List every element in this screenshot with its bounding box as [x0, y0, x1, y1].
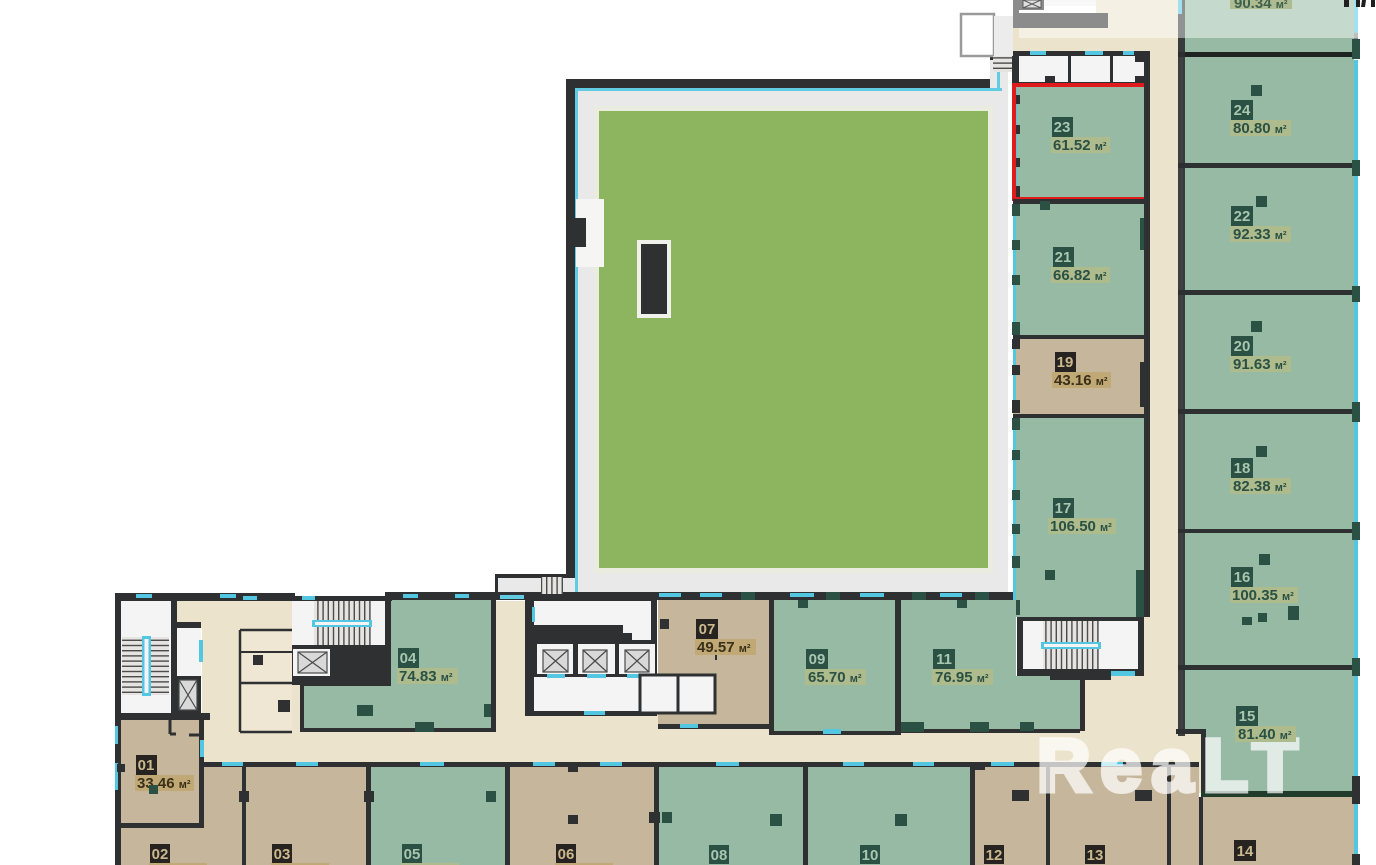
svg-text:10: 10 [862, 847, 879, 864]
svg-text:19: 19 [1057, 354, 1074, 371]
svg-text:12: 12 [986, 847, 1003, 864]
svg-text:13: 13 [1087, 847, 1104, 864]
svg-text:16: 16 [1234, 569, 1251, 586]
svg-text:04: 04 [400, 650, 417, 667]
svg-text:23: 23 [1054, 119, 1071, 136]
svg-text:11: 11 [936, 651, 952, 668]
svg-text:07: 07 [699, 621, 716, 638]
svg-text:90.34 м²: 90.34 м² [1234, 0, 1288, 12]
svg-text:06: 06 [558, 846, 575, 863]
svg-text:01: 01 [138, 757, 155, 774]
svg-text:24: 24 [1234, 102, 1251, 119]
svg-text:20: 20 [1234, 338, 1251, 355]
svg-text:22: 22 [1234, 208, 1251, 225]
svg-text:05: 05 [404, 846, 421, 863]
svg-text:15: 15 [1239, 708, 1256, 725]
svg-text:09: 09 [809, 651, 826, 668]
svg-text:14: 14 [1237, 843, 1254, 860]
svg-text:02: 02 [152, 846, 169, 863]
svg-text:18: 18 [1234, 460, 1251, 477]
svg-text:17: 17 [1055, 500, 1072, 517]
svg-text:03: 03 [274, 846, 291, 863]
svg-text:21: 21 [1055, 249, 1072, 266]
svg-text:08: 08 [711, 847, 728, 864]
